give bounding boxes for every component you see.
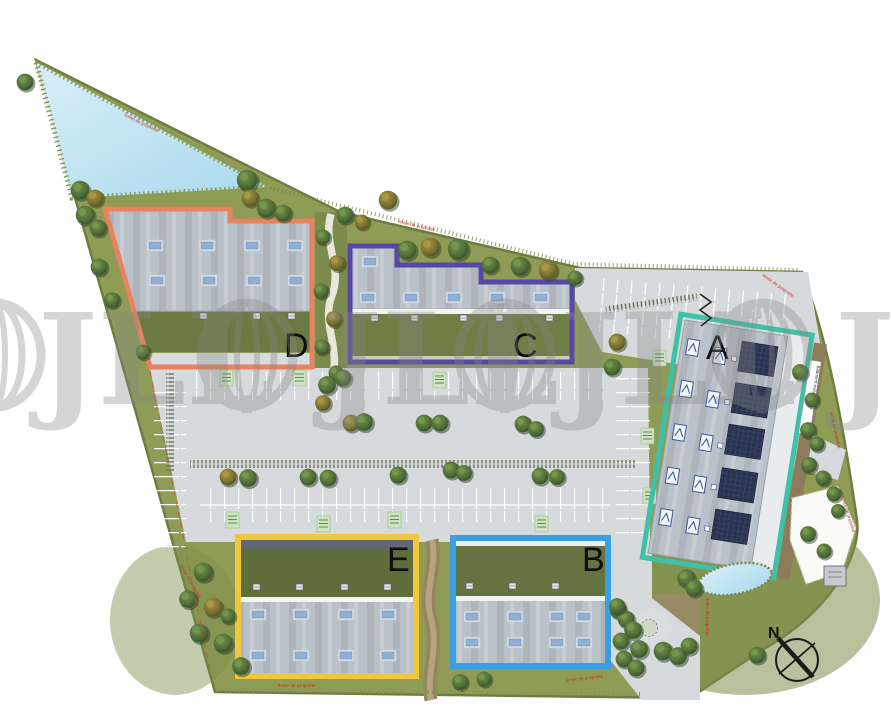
hedge-strip xyxy=(190,460,635,468)
building-b-label: B xyxy=(582,541,605,579)
utility-box xyxy=(824,566,846,586)
boundary-label: limite de propriété xyxy=(705,598,710,636)
site-plan-svg: Bâtiment existant xyxy=(0,0,891,706)
jll-watermark: JLL JLL JLL JLL xyxy=(0,286,891,434)
jll-logo-icon xyxy=(0,303,41,413)
site-plan-canvas: Bâtiment existant xyxy=(0,0,891,706)
boundary-label: limite de propriété xyxy=(278,683,316,688)
watermark-jll-text: JLL xyxy=(825,286,891,434)
north-label: N xyxy=(768,625,780,642)
building-e-label: E xyxy=(387,541,410,579)
